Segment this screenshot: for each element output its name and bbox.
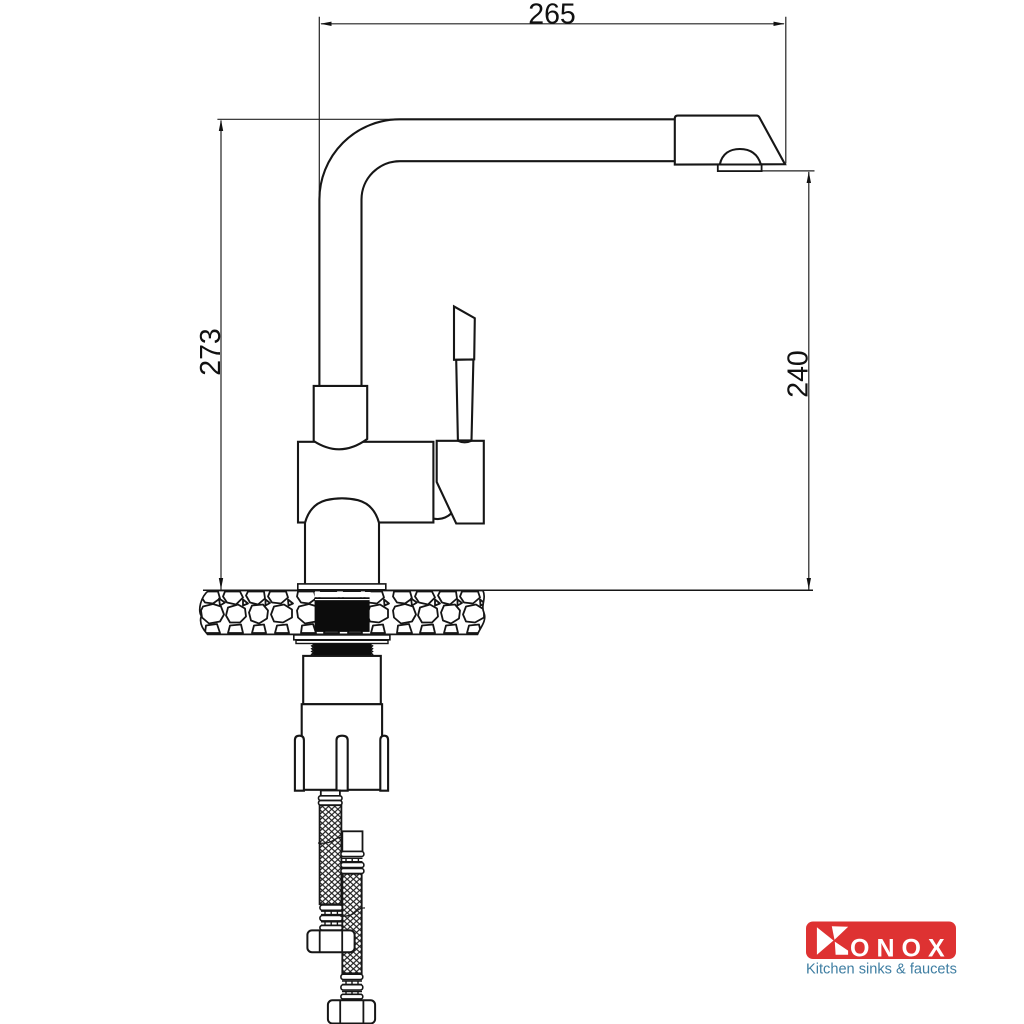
svg-text:ONOX: ONOX: [850, 935, 952, 963]
svg-text:273: 273: [195, 328, 227, 376]
svg-text:Kitchen sinks & faucets: Kitchen sinks & faucets: [806, 962, 957, 978]
svg-text:240: 240: [782, 350, 814, 398]
svg-text:265: 265: [528, 0, 576, 31]
